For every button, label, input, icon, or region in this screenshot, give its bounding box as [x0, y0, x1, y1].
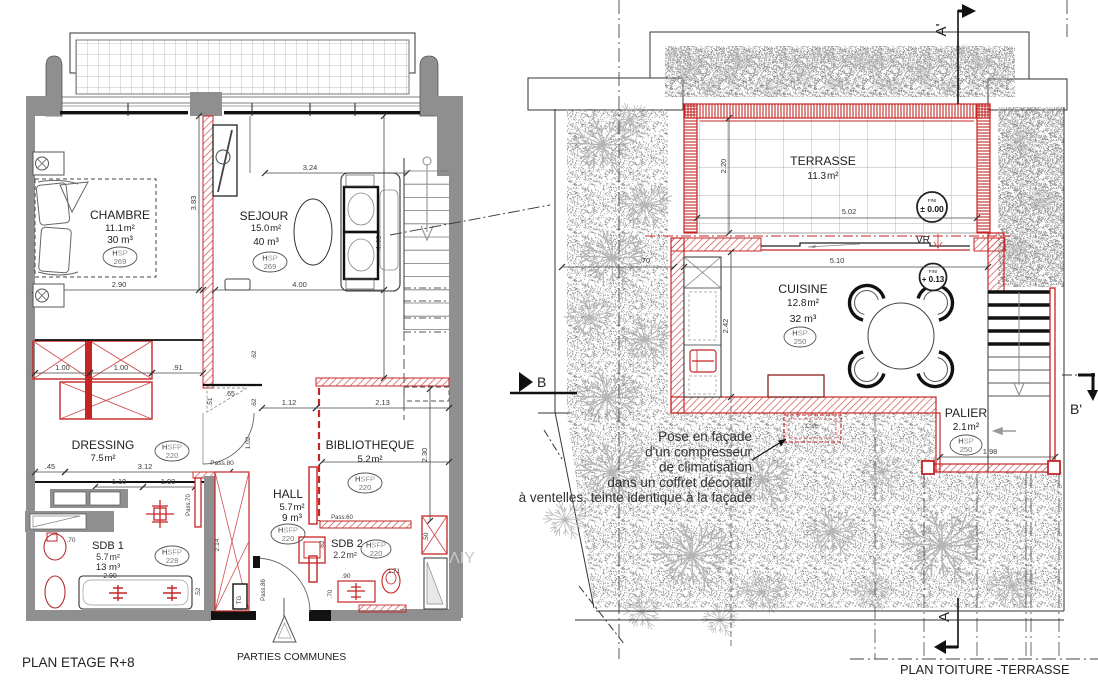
svg-text:40 m³: 40 m³ [253, 237, 279, 248]
svg-text:5.02: 5.02 [842, 207, 857, 216]
svg-text:PLAN TOITURE -TERRASSE: PLAN TOITURE -TERRASSE [900, 662, 1069, 677]
svg-text:.70: .70 [66, 537, 75, 544]
svg-text:1.98: 1.98 [983, 447, 998, 456]
svg-text:SDB 1: SDB 1 [92, 540, 124, 552]
svg-text:269: 269 [114, 257, 127, 266]
svg-text:228: 228 [166, 556, 179, 565]
svg-text:9 m³: 9 m³ [282, 513, 303, 524]
svg-text:CHAMBRE: CHAMBRE [90, 208, 150, 222]
svg-text:SDB 2: SDB 2 [331, 538, 363, 550]
svg-text:1.02: 1.02 [245, 436, 252, 449]
svg-text:5.2 m²: 5.2 m² [357, 454, 382, 465]
svg-text:Pose en façade: Pose en façade [658, 429, 752, 444]
svg-text:TG: TG [237, 596, 243, 605]
svg-text:5.7 m²: 5.7 m² [96, 552, 120, 562]
svg-text:269: 269 [264, 262, 277, 271]
svg-text:de climatisation: de climatisation [659, 460, 752, 475]
svg-text:2.20: 2.20 [719, 159, 728, 174]
svg-text:Pass.70: Pass.70 [186, 494, 192, 516]
svg-text:VR: VR [916, 235, 930, 246]
svg-text:ΛIY: ΛIY [449, 550, 475, 567]
svg-text:TERRASSE: TERRASSE [790, 154, 856, 168]
svg-text:220: 220 [282, 534, 295, 543]
svg-text:B': B' [1070, 401, 1082, 417]
svg-text:+ 0.13: + 0.13 [922, 275, 945, 284]
svg-text:220: 220 [370, 549, 383, 558]
svg-text:2.2 m²: 2.2 m² [333, 550, 357, 560]
svg-text:Pass.86: Pass.86 [261, 579, 267, 601]
svg-text:13 m³: 13 m³ [96, 562, 120, 573]
svg-text:DRESSING: DRESSING [72, 438, 135, 452]
svg-text:250: 250 [960, 445, 973, 454]
svg-text:1.00: 1.00 [55, 363, 70, 372]
svg-text:11.1 m²: 11.1 m² [105, 223, 135, 234]
svg-text:7.5 m²: 7.5 m² [90, 453, 115, 464]
svg-text:.62: .62 [251, 398, 258, 407]
svg-text:PALIER: PALIER [945, 406, 988, 420]
svg-text:3.24: 3.24 [303, 163, 318, 172]
svg-text:1.00: 1.00 [161, 477, 176, 486]
svg-text:A': A' [933, 23, 950, 36]
svg-text:250: 250 [794, 337, 807, 346]
svg-text:PLAN ETAGE R+8: PLAN ETAGE R+8 [22, 655, 135, 670]
svg-text:.50: .50 [423, 532, 430, 541]
svg-text:220: 220 [359, 483, 372, 492]
svg-text:HALL: HALL [273, 487, 303, 501]
svg-text:.91: .91 [172, 363, 182, 372]
svg-text:à ventelles, teinte identique: à ventelles, teinte identique à la façad… [519, 490, 752, 505]
svg-text:3.12: 3.12 [138, 462, 153, 471]
svg-text:11.3 m²: 11.3 m² [807, 171, 839, 182]
svg-text:Clim: Clim [806, 423, 819, 430]
svg-text:Pass.80: Pass.80 [210, 460, 234, 467]
svg-text:PARTIES COMMUNES: PARTIES COMMUNES [237, 651, 346, 663]
svg-text:.62: .62 [251, 350, 258, 359]
svg-text:SEJOUR: SEJOUR [240, 209, 289, 223]
svg-text:5.7 m²: 5.7 m² [279, 502, 304, 513]
svg-text:2.90: 2.90 [112, 280, 127, 289]
svg-text:30 m³: 30 m³ [107, 235, 133, 246]
svg-text:B: B [537, 374, 546, 390]
svg-text:.65: .65 [225, 391, 235, 398]
svg-text:FINI: FINI [928, 198, 937, 203]
svg-text:1.00: 1.00 [114, 363, 129, 372]
svg-text:.45: .45 [45, 462, 55, 471]
svg-text:.70: .70 [328, 589, 334, 598]
svg-text:1.10: 1.10 [112, 477, 127, 486]
svg-text:Pass.60: Pass.60 [331, 515, 353, 521]
svg-text:2.14: 2.14 [214, 538, 221, 551]
svg-text:A: A [936, 612, 953, 622]
svg-text:.51: .51 [207, 397, 214, 406]
svg-text:2.13: 2.13 [375, 398, 390, 407]
svg-text:BIBLIOTHEQUE: BIBLIOTHEQUE [326, 438, 415, 452]
svg-text:.52: .52 [195, 587, 202, 596]
svg-text:32 m³: 32 m³ [790, 313, 817, 325]
svg-text:CUISINE: CUISINE [778, 282, 827, 296]
svg-text:1.71: 1.71 [388, 569, 400, 575]
svg-text:220: 220 [166, 451, 179, 460]
svg-text:3.83: 3.83 [189, 196, 198, 211]
svg-text:2.1 m²: 2.1 m² [953, 422, 980, 433]
svg-text:FINI: FINI [929, 269, 938, 274]
svg-text:dans un coffret décoratif: dans un coffret décoratif [607, 475, 752, 490]
svg-text:2.42: 2.42 [721, 319, 730, 334]
svg-text:12.8 m²: 12.8 m² [787, 298, 820, 309]
svg-text:1.12: 1.12 [282, 398, 297, 407]
svg-text:.62: .62 [319, 540, 326, 549]
svg-text:2.30: 2.30 [420, 448, 429, 463]
svg-text:± 0.00: ± 0.00 [920, 204, 944, 214]
svg-text:5.10: 5.10 [830, 256, 845, 265]
svg-text:15.0 m²: 15.0 m² [251, 223, 281, 234]
svg-text:.70: .70 [640, 256, 650, 265]
svg-text:4.00: 4.00 [292, 280, 307, 289]
svg-text:.90: .90 [341, 573, 350, 580]
svg-text:d'un compresseur: d'un compresseur [645, 444, 752, 459]
